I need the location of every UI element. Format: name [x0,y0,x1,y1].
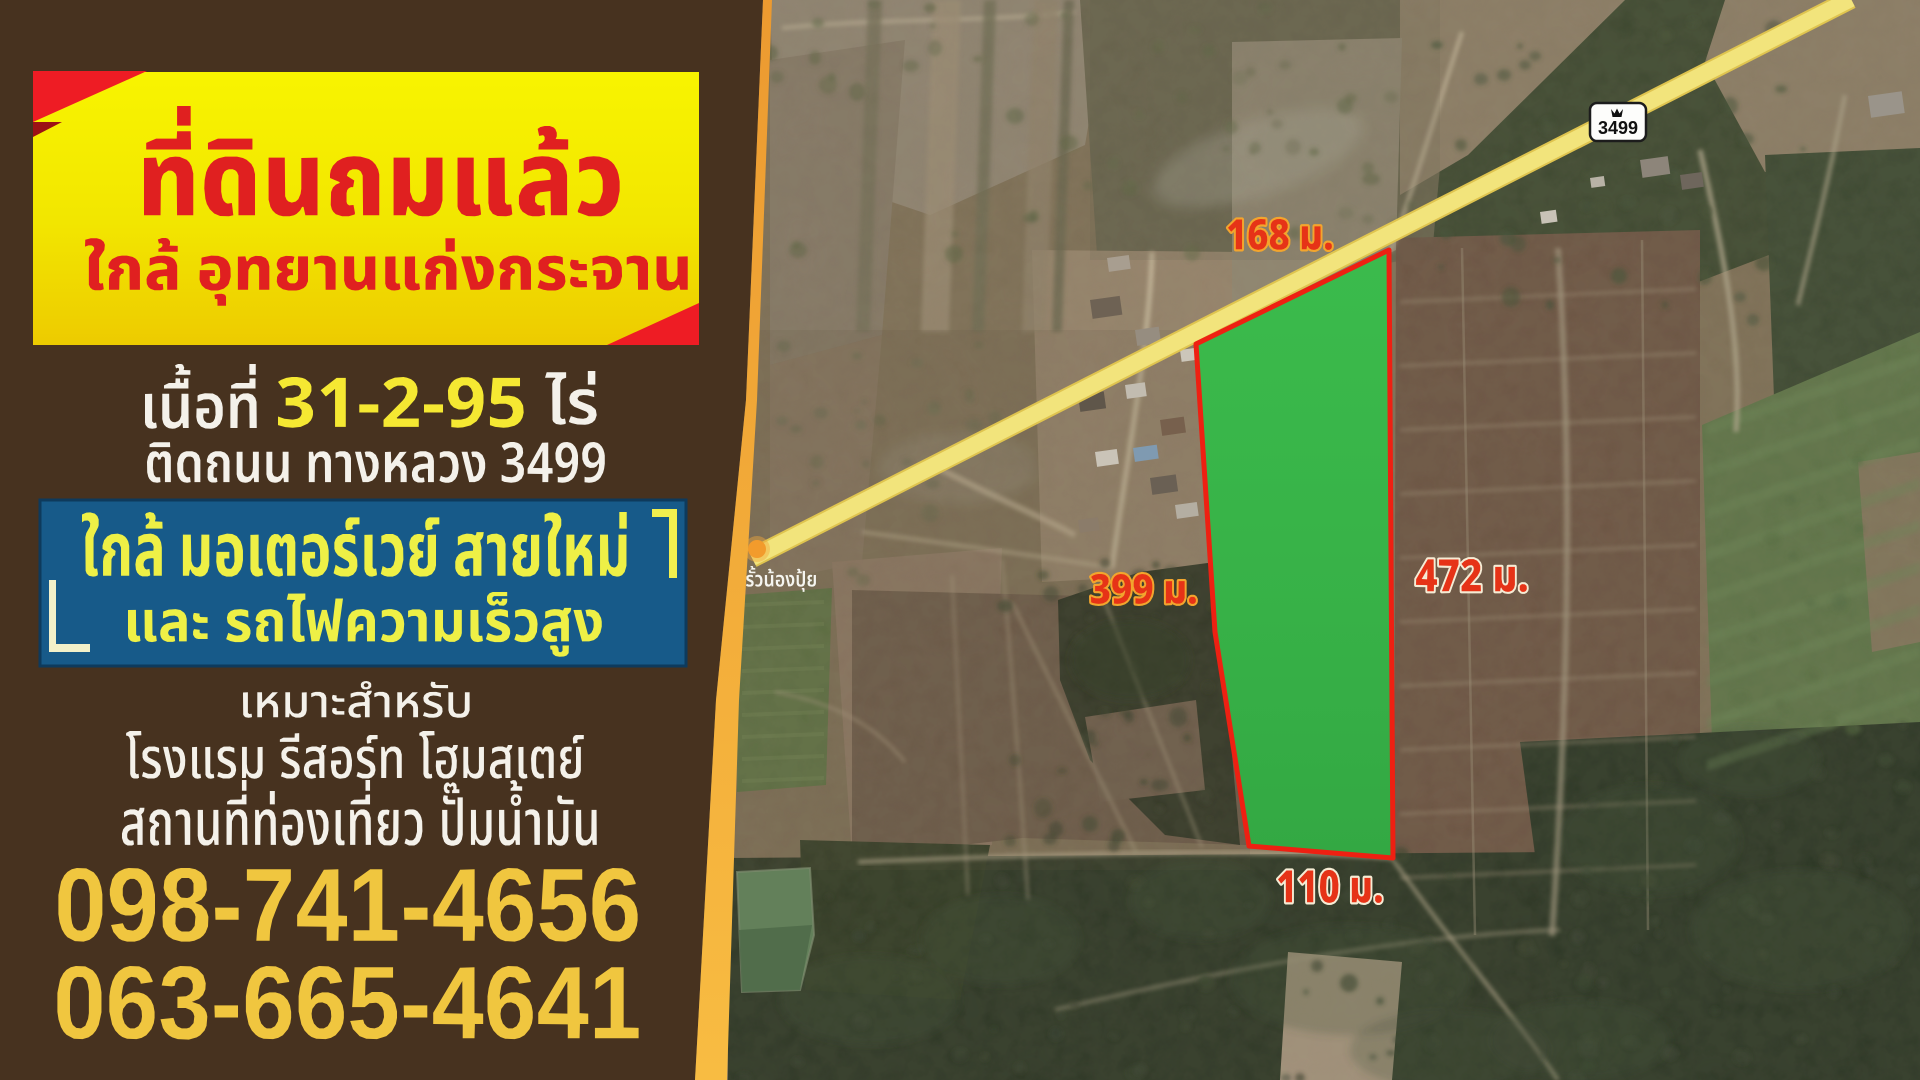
svg-text:3499: 3499 [1598,118,1638,138]
